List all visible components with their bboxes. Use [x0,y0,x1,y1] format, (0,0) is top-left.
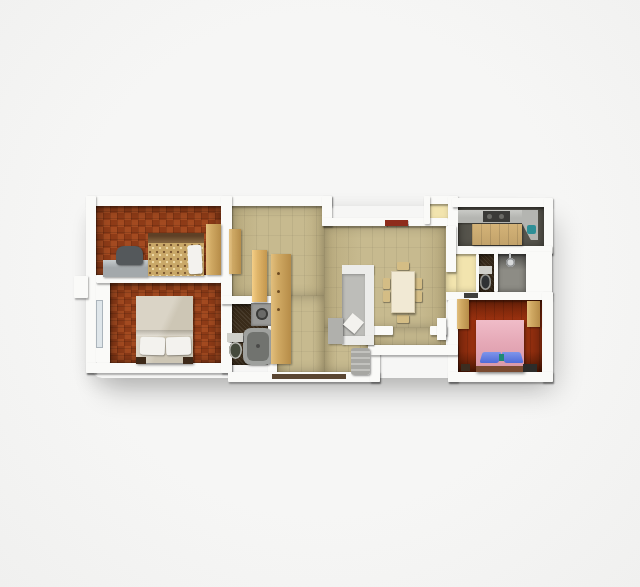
bed-single-headboard [148,233,204,243]
pillow-double-b [166,337,192,356]
wall-left-bump [74,276,88,298]
wall-bedroom-right-right [542,292,553,382]
shower-head [506,258,515,267]
bed-double-pink [476,320,524,372]
washing-machine-door [256,308,268,320]
bed-accent-teal [499,354,504,361]
dining-chair-left-a [383,278,390,289]
floor-plan-render [0,0,640,587]
wardrobe-right-a [457,299,469,329]
window-left-bedroom [96,300,103,348]
tall-wardrobe [271,254,291,364]
sofa-arm-bottom [342,336,374,345]
stove-burner-a [487,214,492,219]
room-hallway-right [456,252,478,292]
dining-table [391,271,415,313]
dining-chair-right-b [415,291,422,302]
chaise [328,318,343,344]
open-door-white [437,318,446,340]
kitchen-island [472,224,522,245]
tv-unit [523,364,537,372]
armchair [351,348,370,375]
bed-pink-footboard [476,366,524,372]
bed-post-b [183,357,193,364]
wall-ac-unit [464,293,478,298]
wall-pantry-left [424,196,430,224]
wall-bottom-left-block [86,363,232,373]
wardrobe-knob-c [277,308,280,311]
bed-double-fold [136,330,193,336]
bed-post-a [136,357,146,364]
radiator-red [385,220,408,226]
sink-teal [527,225,536,234]
dining-chair-right-a [415,278,422,289]
wall-wc-shower-divider [494,252,498,292]
wall-kitchen-top [452,198,552,207]
dining-chair-left-b [383,291,390,302]
wardrobe-right-b [527,301,540,327]
wall-bedroom-right-bottom [448,372,553,382]
sofa-back-right [365,265,374,345]
stove-burner-b [499,214,504,219]
desk-chair [116,246,143,265]
pillow-single [187,245,202,275]
dining-chair-bottom [397,315,409,323]
wall-living-right [446,226,456,272]
toilet-left-tank [227,333,243,342]
pillow-blue-b [501,352,523,363]
wall-top-main [86,196,332,206]
wall-stub-left [373,326,393,335]
hall-door-panel [229,229,241,274]
wardrobe-small [206,224,221,275]
nightstand [461,364,470,371]
toilet-right-bowl [480,274,491,290]
bathtub-drain [256,344,260,348]
window-sill-living-bottom [272,374,346,379]
wardrobe-panel [252,250,267,302]
toilet-right-tank [479,266,492,274]
dining-chair-top [397,262,409,270]
pillow-double-a [140,337,166,356]
wardrobe-knob-a [277,272,280,275]
wall-bottom-lower-right [370,345,458,355]
wardrobe-knob-b [277,290,280,293]
wall-right-mass [526,252,552,294]
